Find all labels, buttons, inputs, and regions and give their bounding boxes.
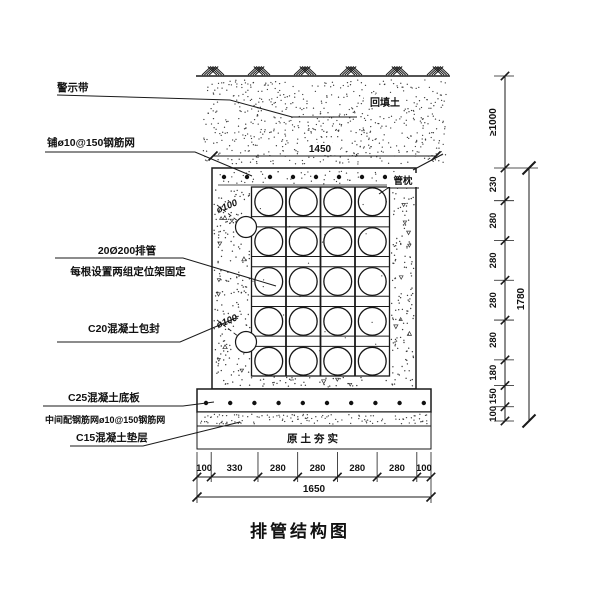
encasement-label: C20混凝土包封	[88, 322, 160, 335]
dim-right-segment: 100	[488, 406, 499, 422]
dim-right-segment: 280	[488, 213, 499, 229]
dim-right-segment: 180	[488, 365, 499, 381]
dim-cover-depth: ≥1000	[488, 108, 499, 136]
dim-bottom-segment: 280	[349, 463, 365, 474]
dim-bottom-segment: 330	[227, 463, 243, 474]
warning-tape-label: 警示带	[56, 81, 89, 94]
dim-bottom-segment: 100	[196, 463, 212, 474]
backfill-label: 回填土	[370, 96, 400, 109]
dim-right-segment: 150	[488, 388, 499, 404]
warning-tape-leader	[57, 95, 357, 117]
pipes-label-line2: 每根设置两组定位架固定	[70, 265, 186, 278]
dim-bottom-segment: 280	[270, 463, 286, 474]
drain-pipe-annotations: ø100ø100	[215, 197, 257, 352]
pipes-label-line1: 20Ø200排管	[98, 244, 157, 257]
dim-right-total: 1780	[516, 287, 527, 310]
drain-pipe-circle	[236, 332, 257, 353]
base-slab-label-line1: C25混凝土底板	[68, 391, 140, 404]
drain-pipe-circle	[236, 217, 257, 238]
base-slab-label-line2: 中间配钢筋网ø10@150钢筋网	[45, 414, 165, 425]
dim-bottom-segment: 100	[416, 463, 432, 474]
dim-right-segment: 280	[488, 292, 499, 308]
dim-right-segment: 230	[488, 176, 499, 192]
drawing-page: ø100ø100 管枕 原土夯实 10033028028028028010023…	[0, 0, 600, 600]
dim-bottom-segment: 280	[310, 463, 326, 474]
dim-top-width: 1450	[309, 144, 332, 155]
pipe-pillow-label: 管枕	[393, 175, 413, 187]
drawing-title: 排管结构图	[250, 521, 350, 541]
c25-base-slab	[197, 389, 431, 412]
pipe-duct-structure-diagram: ø100ø100 管枕 原土夯实 10033028028028028010023…	[0, 0, 600, 600]
dim-bottom-total: 1650	[303, 484, 326, 495]
top-mesh-label: 铺ø10@150钢筋网	[47, 136, 135, 149]
ground-hatch-symbols	[202, 67, 449, 76]
dim-bottom-segment: 280	[389, 463, 405, 474]
compacted-soil-label: 原土夯实	[287, 432, 341, 445]
drain-pipe-diameter-label: ø100	[215, 197, 240, 216]
dim-right-segment: 280	[488, 252, 499, 268]
cushion-label: C15混凝土垫层	[76, 431, 148, 444]
dim-right-segment: 280	[488, 332, 499, 348]
